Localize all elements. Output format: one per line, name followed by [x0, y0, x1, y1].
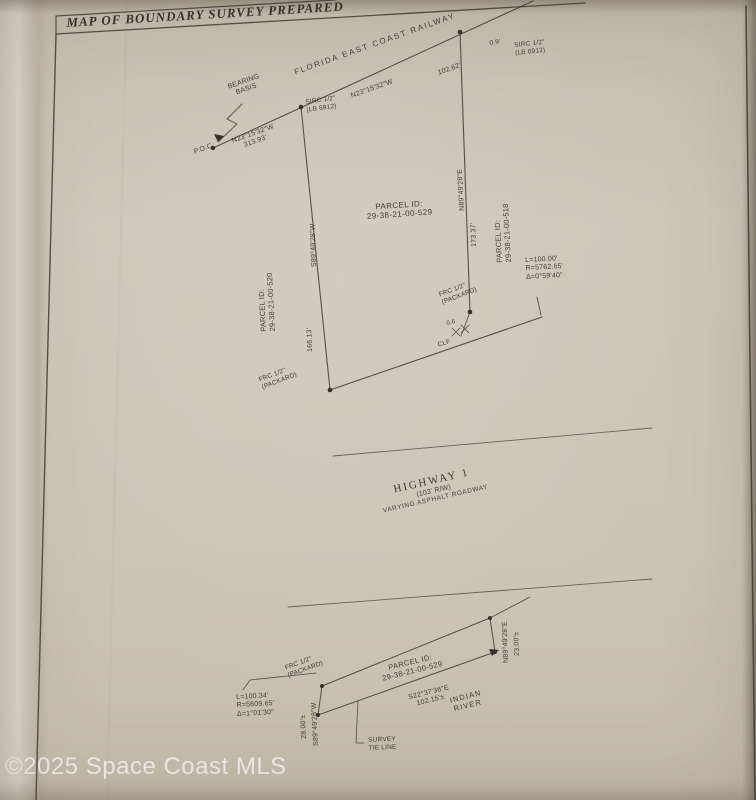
arrowheads	[214, 134, 499, 656]
sheet-border-right	[746, 6, 755, 800]
sirc-ne-label: SIRC 1/2" (LB 6912)	[514, 39, 546, 57]
ne-curve-tick	[537, 297, 541, 315]
sw-curve-leader	[243, 673, 316, 690]
fence-x-marks	[452, 325, 469, 336]
west-line-distance: 166.13'	[306, 328, 315, 352]
east-line-distance: 173.37'	[470, 223, 479, 247]
parcel-south-line	[330, 317, 542, 390]
railway-line	[213, 1, 533, 148]
sw-curve-data: L=100.34' R=5609.65' Δ=1°01'30"	[236, 692, 275, 719]
west-line-bearing: S89°49'28"W	[309, 223, 319, 267]
mls-watermark: ©2025 Space Coast MLS	[5, 753, 287, 781]
sheet-border-left	[36, 34, 56, 800]
survey-photo: MAP OF BOUNDARY SURVEY PREPARED FLORIDA …	[0, 0, 756, 800]
west-parcel-id: PARCEL ID: 29-38-21-00-520	[257, 272, 278, 332]
highway-row-line-north	[333, 428, 652, 456]
inset-west-distance: 28.00'±	[300, 714, 310, 739]
survey-tie-leader	[356, 701, 364, 743]
inset-east-bearing: N89°49'28"E	[502, 621, 512, 663]
inset-east-distance: 23.00'±	[513, 632, 522, 656]
ne-curve-data: L=100.00' R=5762.65' Δ=0°59'40"	[525, 255, 564, 282]
east-parcel-id: PARCEL ID: 29-38-21-00-518	[493, 203, 514, 263]
survey-tie-line-label: SURVEY TIE LINE	[368, 736, 397, 753]
highway-row-line-south	[288, 579, 652, 607]
